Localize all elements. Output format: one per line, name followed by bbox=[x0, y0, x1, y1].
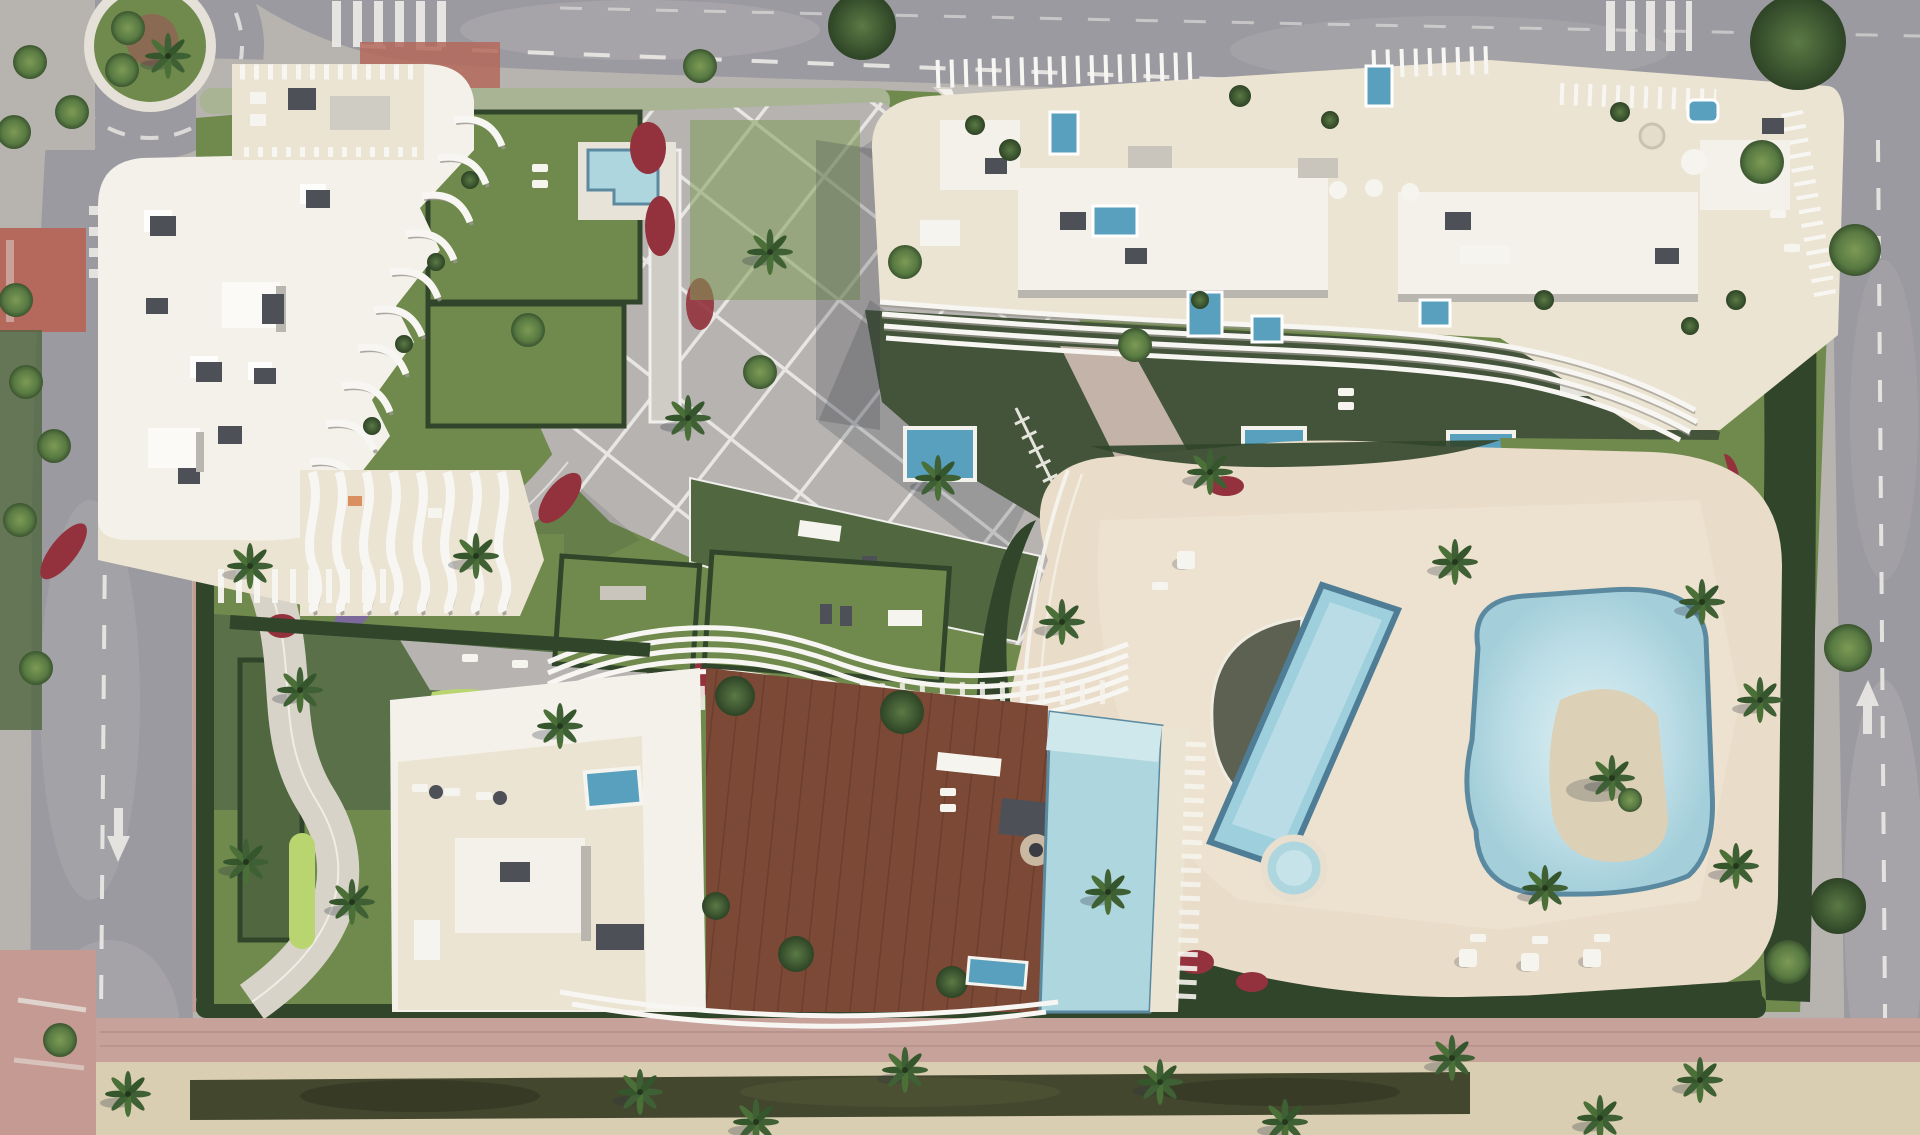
shade-tree bbox=[1118, 328, 1152, 362]
terrace-plant bbox=[1726, 290, 1746, 310]
shade-tree bbox=[19, 651, 53, 685]
lounger bbox=[1532, 936, 1548, 944]
lounger bbox=[940, 804, 956, 812]
island-bush bbox=[1618, 788, 1642, 812]
terrace-plant bbox=[1534, 290, 1554, 310]
balcony-plant bbox=[427, 253, 445, 271]
terrace-rug bbox=[348, 496, 362, 506]
shade-tree bbox=[105, 53, 139, 87]
shade-tree bbox=[888, 245, 922, 279]
west-hedge bbox=[196, 534, 214, 1004]
flower-bed-red bbox=[645, 196, 675, 256]
lounger bbox=[532, 180, 548, 188]
street-tree bbox=[1810, 878, 1866, 934]
flower-bed-red bbox=[630, 122, 666, 174]
terrace-plant bbox=[965, 115, 985, 135]
terrace-plant bbox=[999, 139, 1021, 161]
shade-tree bbox=[743, 355, 777, 389]
lower-plunge-pool bbox=[967, 957, 1027, 988]
deck-planter bbox=[715, 676, 755, 716]
lounger-cushion bbox=[493, 791, 507, 805]
road-wear bbox=[1850, 260, 1918, 580]
street-tree bbox=[1824, 624, 1872, 672]
terrace-chair bbox=[428, 508, 442, 518]
lounger bbox=[476, 792, 492, 800]
terrace-plunge-pool bbox=[585, 768, 642, 809]
lounger bbox=[444, 788, 460, 796]
dining-set bbox=[1298, 158, 1338, 178]
roof-volume bbox=[455, 838, 585, 933]
rooftop-pool bbox=[1040, 712, 1190, 1012]
balcony-plant bbox=[395, 335, 413, 353]
shade-tree bbox=[683, 49, 717, 83]
egg-chair bbox=[1365, 179, 1383, 197]
main-pool bbox=[1467, 589, 1713, 894]
shade-tree bbox=[511, 313, 545, 347]
lounger bbox=[1770, 210, 1786, 218]
shade-tree bbox=[3, 503, 37, 537]
roof-volume bbox=[1398, 192, 1698, 300]
deck-planter bbox=[778, 936, 814, 972]
lounger-dark bbox=[840, 606, 852, 626]
shade-tree bbox=[111, 11, 145, 45]
outdoor-sofa bbox=[1460, 246, 1510, 264]
site-plan-svg bbox=[0, 0, 1920, 1135]
building-b-west-shadow bbox=[816, 140, 880, 430]
garden-sofa bbox=[600, 586, 646, 600]
shade-tree bbox=[55, 95, 89, 129]
terrace-plant bbox=[1681, 317, 1699, 335]
shade-tree bbox=[43, 1023, 77, 1057]
stair-bulkhead bbox=[330, 96, 390, 130]
lounger bbox=[532, 164, 548, 172]
road-wear bbox=[460, 0, 820, 60]
outdoor-kitchen bbox=[414, 920, 440, 960]
spiral-stair bbox=[1640, 124, 1664, 148]
terrace-chair bbox=[250, 92, 266, 104]
lounger bbox=[1338, 402, 1354, 410]
round-daybed bbox=[1681, 149, 1707, 175]
shade-tree bbox=[37, 429, 71, 463]
southeast-fin-terrace bbox=[300, 470, 544, 616]
aerial-render bbox=[0, 0, 1920, 1135]
terrace-plant bbox=[1610, 102, 1630, 122]
lounger bbox=[1594, 934, 1610, 942]
shade-tree bbox=[0, 283, 33, 317]
street-tree bbox=[1829, 224, 1881, 276]
lounger bbox=[1152, 582, 1168, 590]
lounger-dark bbox=[820, 604, 832, 624]
deck-planter bbox=[702, 892, 730, 920]
street-tree bbox=[1740, 140, 1784, 184]
roof-volume-shadow bbox=[581, 846, 591, 941]
flower-bed-red bbox=[1236, 972, 1268, 992]
roof-hatch bbox=[500, 862, 530, 882]
jacuzzi bbox=[1688, 100, 1718, 122]
deck-planter bbox=[880, 690, 924, 734]
garden-table bbox=[888, 610, 922, 626]
shade-tree bbox=[9, 365, 43, 399]
roof-hatch bbox=[288, 88, 316, 110]
dune-hedge-shadow bbox=[1160, 1078, 1400, 1106]
terrace-plant bbox=[1321, 111, 1339, 129]
egg-chair bbox=[1329, 181, 1347, 199]
balcony-plant bbox=[363, 417, 381, 435]
terrace-plant bbox=[1191, 291, 1209, 309]
brick-promenade bbox=[96, 1018, 1920, 1062]
lounger bbox=[1470, 934, 1486, 942]
balcony-plant bbox=[461, 171, 479, 189]
deck-planter bbox=[936, 966, 968, 998]
shade-tree bbox=[13, 45, 47, 79]
terrace-plant bbox=[1229, 85, 1251, 107]
water-sparkle bbox=[1276, 850, 1312, 886]
bench bbox=[512, 660, 528, 668]
beach-promenade bbox=[96, 1018, 1920, 1135]
dining-table bbox=[596, 924, 644, 950]
north-railing bbox=[1372, 60, 1490, 64]
fire-bowl-center bbox=[1029, 843, 1043, 857]
roof-volume-shadow bbox=[1018, 290, 1328, 298]
bench bbox=[462, 654, 478, 662]
dune-hedge-shadow bbox=[300, 1080, 540, 1112]
street-tree bbox=[1766, 940, 1810, 984]
roof-volume bbox=[1018, 168, 1328, 296]
dining-set bbox=[1128, 146, 1172, 168]
lounger bbox=[412, 784, 428, 792]
lounger bbox=[1338, 388, 1354, 396]
lounger bbox=[1784, 244, 1800, 252]
lounger-cushion bbox=[429, 785, 443, 799]
lounger bbox=[940, 788, 956, 796]
egg-chair bbox=[1401, 183, 1419, 201]
corner-sofa bbox=[920, 220, 960, 246]
terrace-chair bbox=[250, 114, 266, 126]
